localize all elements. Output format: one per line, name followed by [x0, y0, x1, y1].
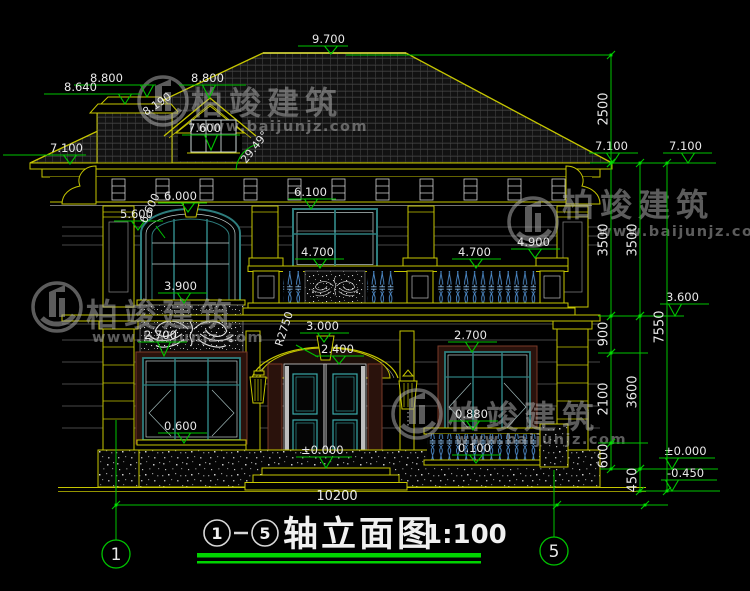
level-label: 4.700 [458, 245, 491, 259]
dimension-label: 3500 [626, 223, 641, 256]
level-label: 3.900 [164, 279, 197, 293]
balcony-post-left [249, 258, 283, 303]
level-label: 3.600 [666, 290, 699, 304]
horizontal-dimension: 10200 [112, 489, 668, 509]
balcony-post-right [536, 258, 568, 303]
pilaster-mid-left [252, 206, 278, 258]
level-label: 9.700 [312, 32, 345, 46]
level-label: 7.100 [669, 139, 702, 153]
dimension-label: 2500 [597, 92, 612, 125]
level-label: -0.450 [667, 466, 704, 480]
level-label: 2.700 [144, 328, 177, 342]
level-marker: 4.700 [452, 245, 501, 268]
dimension-label: 600 [597, 444, 612, 469]
level-label: 8.800 [191, 71, 224, 85]
level-label: ±0.000 [301, 443, 344, 457]
dimension-label: 3500 [597, 223, 612, 256]
axis-bubble-1-label: 1 [111, 545, 122, 565]
level-label: 0.880 [455, 407, 488, 421]
balcony-ornament-panel [305, 271, 365, 303]
elevation-drawing-canvas: 柏竣建筑www.baijunjz.com柏竣建筑www.baijunjz.com… [0, 0, 750, 591]
title-underline-thin [197, 561, 481, 564]
level-label: 6.000 [164, 189, 197, 203]
watermark-brand: 柏竣建筑 [562, 186, 714, 224]
level-label: 4.700 [301, 245, 334, 259]
balcony-post-mid [403, 258, 437, 303]
level-label: 8.640 [64, 80, 97, 94]
vertical-dimension: 450 [626, 465, 645, 495]
level-label: 2.700 [454, 328, 487, 342]
drawing-title-block: 1 5 轴立面图 1:100 [197, 515, 507, 564]
axis-bubble-5: 5 [540, 537, 568, 565]
title-underline-thick [197, 553, 481, 558]
level-label: 3.000 [306, 319, 339, 333]
axis-bubble-5-label: 5 [549, 542, 560, 562]
dimension-label: 3600 [626, 375, 641, 408]
watermark-url: www.baijunjz.com [196, 119, 368, 135]
level-label: 7.600 [188, 121, 221, 135]
dimension-label: 7550 [653, 310, 668, 343]
drawing-title: 轴立面图 [283, 515, 435, 555]
balcony-railing [243, 258, 575, 317]
watermark-logo-icon [33, 283, 81, 331]
drawing-scale: 1:100 [424, 520, 507, 550]
entrance-steps [245, 468, 407, 490]
keystone-upper [183, 203, 199, 217]
level-label: 0.600 [164, 419, 197, 433]
watermark-url: www.baijunjz.com [598, 224, 750, 240]
axis-bubble-1: 1 [102, 540, 130, 568]
level-label: 6.100 [294, 185, 327, 199]
dimension-label: 450 [626, 468, 641, 493]
watermark-brand: 柏竣建筑 [191, 84, 343, 122]
dimension-label: 2100 [597, 382, 612, 415]
cad-viewport: 柏竣建筑www.baijunjz.com柏竣建筑www.baijunjz.com… [0, 0, 750, 591]
watermark-url: www.baijunjz.com [92, 330, 264, 346]
level-label: ±0.000 [664, 444, 707, 458]
level-marker: -0.450 [661, 466, 717, 491]
level-label: 4.900 [517, 235, 550, 249]
dimension-label: 10200 [316, 489, 357, 504]
title-axis-to: 5 [259, 524, 270, 543]
level-label: 2.400 [321, 342, 354, 356]
dimension-label: 900 [597, 322, 612, 347]
vertical-dimension: 600 [597, 439, 616, 473]
vertical-dimension: 3600 [626, 312, 645, 473]
level-label: 0.100 [458, 441, 491, 455]
title-axis-from: 1 [211, 524, 222, 543]
level-label: 7.100 [50, 141, 83, 155]
pilaster-mid-right [408, 206, 434, 258]
level-marker: 9.700 [298, 32, 348, 54]
